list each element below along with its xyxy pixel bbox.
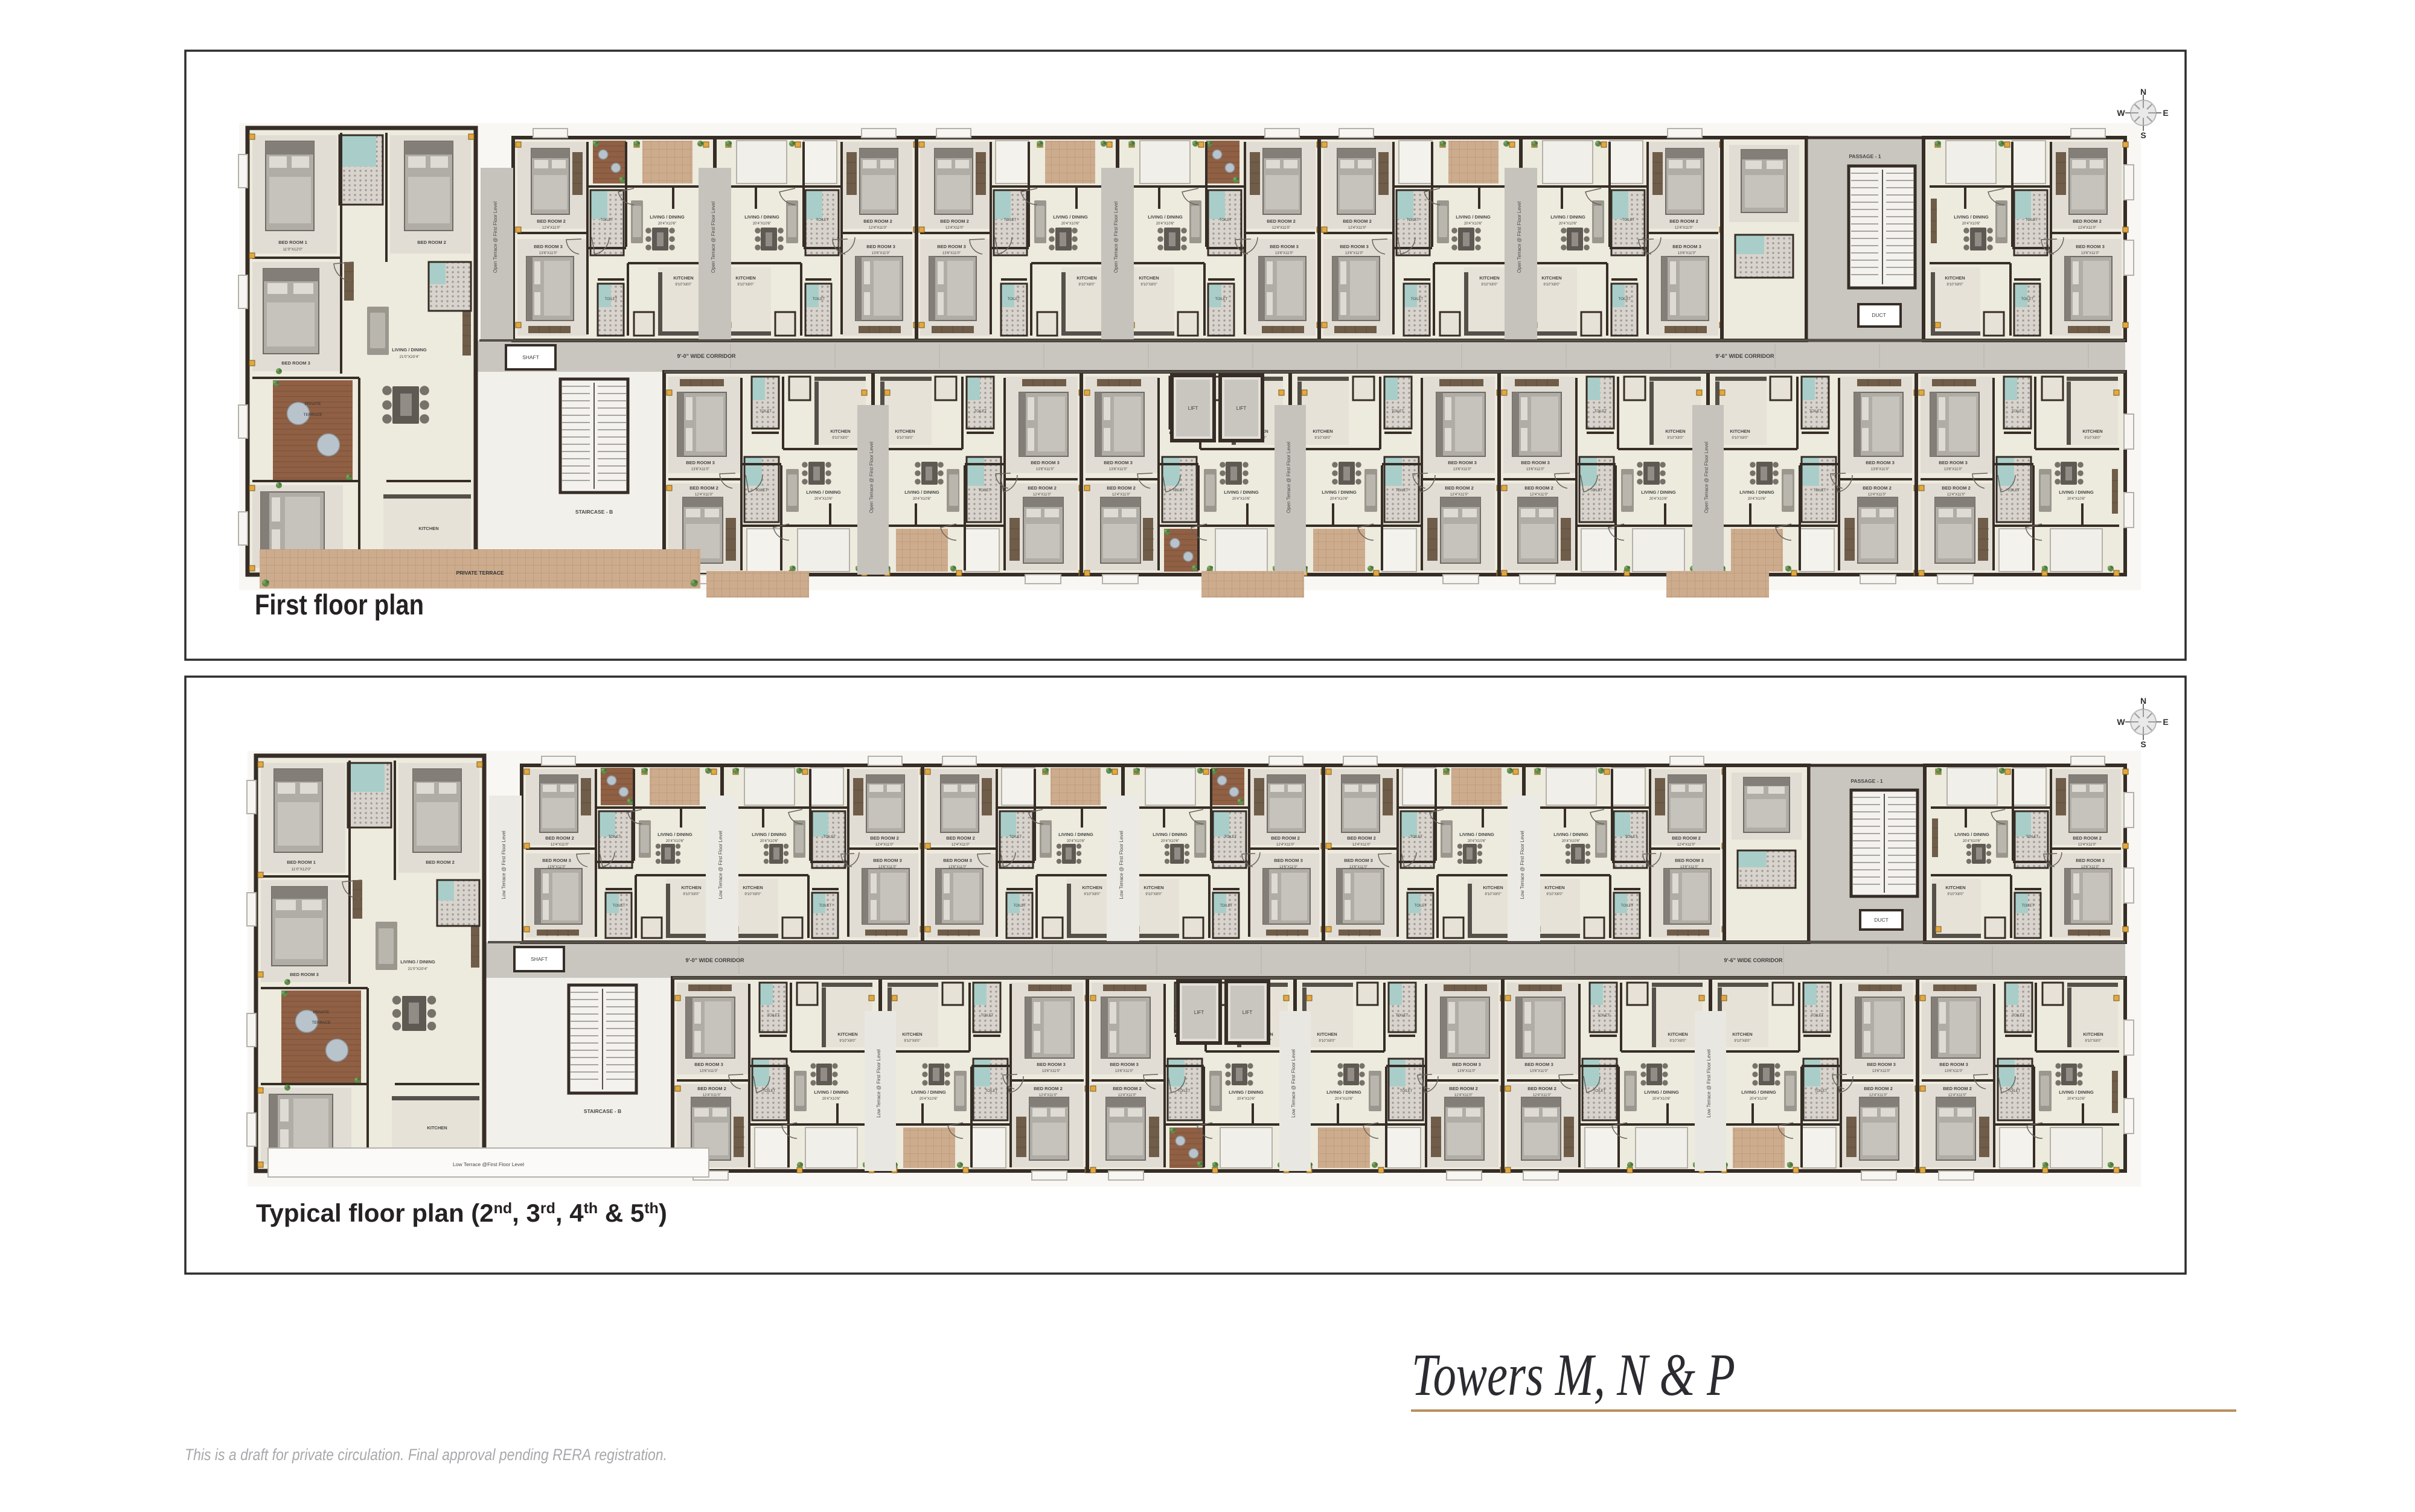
svg-text:20'4"X10'6": 20'4"X10'6" (814, 497, 833, 501)
svg-text:BED ROOM 2: BED ROOM 2 (417, 240, 446, 245)
svg-text:20'4"X10'6": 20'4"X10'6" (1468, 840, 1486, 843)
svg-text:BED ROOM 2: BED ROOM 2 (1672, 835, 1701, 841)
svg-text:12'4"X11'0": 12'4"X11'0" (1868, 493, 1886, 497)
svg-text:13'6"X11'0": 13'6"X11'0" (1944, 468, 1962, 471)
svg-text:13'6"X11'0": 13'6"X11'0" (691, 468, 709, 471)
svg-text:LIVING / DINING: LIVING / DINING (2059, 1089, 2094, 1095)
svg-text:BED ROOM 3: BED ROOM 3 (943, 858, 972, 863)
svg-text:11'0"X12'0": 11'0"X12'0" (283, 247, 303, 252)
svg-text:13'6"X11'0": 13'6"X11'0" (1680, 866, 1698, 869)
svg-text:Low Terrace @First Floor Level: Low Terrace @First Floor Level (453, 1161, 524, 1167)
svg-text:13'6"X11'0": 13'6"X11'0" (878, 866, 897, 869)
svg-text:KITCHEN: KITCHEN (1541, 275, 1561, 281)
svg-text:BED ROOM 2: BED ROOM 2 (940, 219, 969, 224)
svg-text:9'10"X8'0": 9'10"X8'0" (1314, 436, 1331, 440)
svg-text:13'6"X11'0": 13'6"X11'0" (539, 252, 557, 255)
svg-text:20'4"X10'6": 20'4"X10'6" (822, 1097, 841, 1101)
svg-text:13'6"X11'0": 13'6"X11'0" (1526, 468, 1544, 471)
svg-text:TOILET: TOILET (755, 489, 768, 493)
svg-text:BED ROOM 2: BED ROOM 2 (545, 835, 574, 841)
svg-text:LIVING / DINING: LIVING / DINING (1550, 214, 1585, 220)
svg-text:20'4"X10'6": 20'4"X10'6" (1748, 497, 1767, 501)
svg-text:TOILET: TOILET (2021, 298, 2034, 301)
svg-text:LIVING / DINING: LIVING / DINING (1644, 1089, 1679, 1095)
svg-text:12'4"X11'0": 12'4"X11'0" (1947, 493, 1965, 497)
svg-text:TOILET: TOILET (1392, 410, 1404, 413)
svg-text:TOILET: TOILET (1178, 1089, 1191, 1093)
svg-text:TOILET: TOILET (2012, 410, 2024, 413)
svg-text:TOILET: TOILET (1595, 410, 1607, 413)
svg-text:BED ROOM 3: BED ROOM 3 (1104, 460, 1133, 465)
svg-text:LIVING / DINING: LIVING / DINING (657, 832, 693, 837)
svg-text:12'4"X11'0": 12'4"X11'0" (542, 226, 560, 230)
svg-text:TOILET: TOILET (1625, 835, 1638, 839)
svg-text:21'0"X20'4": 21'0"X20'4" (399, 355, 420, 359)
svg-text:20'4"X10'6": 20'4"X10'6" (1237, 1097, 1256, 1101)
svg-text:BED ROOM 3: BED ROOM 3 (2076, 858, 2105, 863)
svg-text:LIFT: LIFT (1243, 1010, 1253, 1015)
svg-text:BED ROOM 1: BED ROOM 1 (278, 240, 307, 245)
svg-text:TOILET: TOILET (813, 298, 825, 301)
svg-text:KITCHEN: KITCHEN (681, 885, 701, 890)
svg-text:BED ROOM 3: BED ROOM 3 (290, 972, 319, 977)
svg-text:9'10"X8'0": 9'10"X8'0" (1078, 283, 1095, 287)
svg-text:TOILET: TOILET (1009, 835, 1022, 839)
svg-text:12'4"X11'0": 12'4"X11'0" (1454, 1094, 1473, 1097)
svg-text:20'4"X10'6": 20'4"X10'6" (666, 840, 685, 843)
svg-text:TERRACE: TERRACE (312, 1021, 331, 1025)
svg-text:KITCHEN: KITCHEN (2083, 1032, 2103, 1037)
svg-text:KITCHEN: KITCHEN (830, 429, 850, 434)
svg-text:13'6"X11'0": 13'6"X11'0" (1036, 468, 1054, 471)
svg-text:STAIRCASE - B: STAIRCASE - B (584, 1108, 621, 1114)
svg-text:9'10"X8'0": 9'10"X8'0" (683, 893, 699, 896)
svg-text:TOILET: TOILET (1411, 298, 1424, 301)
svg-text:20'4"X10'6": 20'4"X10'6" (1061, 222, 1080, 226)
svg-text:KITCHEN: KITCHEN (2082, 429, 2102, 434)
svg-text:9'10"X8'0": 9'10"X8'0" (1946, 283, 1963, 287)
svg-text:LIVING / DINING: LIVING / DINING (1153, 832, 1188, 837)
svg-text:KITCHEN: KITCHEN (1313, 429, 1332, 434)
svg-text:Low Terrace @ First Floor Leve: Low Terrace @ First Floor Level (501, 831, 507, 899)
svg-text:20'4"X10'6": 20'4"X10'6" (1963, 840, 1982, 843)
svg-text:9'-6" WIDE CORRIDOR: 9'-6" WIDE CORRIDOR (1724, 957, 1783, 963)
svg-text:KITCHEN: KITCHEN (1945, 885, 1965, 890)
svg-text:LIVING / DINING: LIVING / DINING (1739, 490, 1774, 495)
svg-text:9'10"X8'0": 9'10"X8'0" (897, 436, 913, 440)
svg-text:13'6"X11'0": 13'6"X11'0" (1279, 866, 1297, 869)
svg-text:BED ROOM 3: BED ROOM 3 (1866, 460, 1895, 465)
svg-text:LIFT: LIFT (1194, 1010, 1204, 1015)
svg-text:KITCHEN: KITCHEN (743, 885, 763, 890)
svg-text:13'6"X11'0": 13'6"X11'0" (1872, 1070, 1890, 1073)
svg-text:KITCHEN: KITCHEN (1479, 275, 1499, 281)
svg-text:Open Terrace @ First Floor Lev: Open Terrace @ First Floor Level (1286, 442, 1291, 513)
svg-text:20'4"X10'6": 20'4"X10'6" (658, 222, 677, 226)
svg-text:KITCHEN: KITCHEN (1730, 429, 1750, 434)
svg-text:E: E (2163, 717, 2168, 727)
svg-text:TOILET: TOILET (1410, 835, 1423, 839)
svg-text:13'6"X11'0": 13'6"X11'0" (1530, 1070, 1548, 1073)
svg-text:BED ROOM 3: BED ROOM 3 (1270, 244, 1299, 249)
svg-text:12'4"X11'0": 12'4"X11'0" (952, 843, 970, 847)
svg-text:LIVING / DINING: LIVING / DINING (911, 1089, 946, 1095)
svg-text:20'4"X10'6": 20'4"X10'6" (1559, 222, 1578, 226)
svg-text:9'10"X8'0": 9'10"X8'0" (1546, 893, 1563, 896)
svg-text:BED ROOM 2: BED ROOM 2 (863, 219, 892, 224)
svg-text:20'4"X10'6": 20'4"X10'6" (1464, 222, 1483, 226)
svg-text:12'4"X11'0": 12'4"X11'0" (2078, 843, 2096, 847)
svg-text:BED ROOM 3: BED ROOM 3 (1344, 858, 1373, 863)
svg-text:BED ROOM 2: BED ROOM 2 (1343, 219, 1372, 224)
svg-text:BED ROOM 2: BED ROOM 2 (1267, 219, 1296, 224)
svg-text:KITCHEN: KITCHEN (1139, 275, 1159, 281)
svg-text:LIVING / DINING: LIVING / DINING (752, 832, 787, 837)
svg-text:20'4"X10'6": 20'4"X10'6" (2067, 1097, 2086, 1101)
svg-text:TOILET: TOILET (1809, 410, 1822, 413)
svg-text:12'4"X11'0": 12'4"X11'0" (1450, 493, 1468, 497)
svg-text:BED ROOM 3: BED ROOM 3 (686, 460, 715, 465)
svg-text:TOILET: TOILET (1593, 1089, 1606, 1093)
svg-text:DUCT: DUCT (1872, 312, 1886, 318)
svg-text:9'10"X8'0": 9'10"X8'0" (1319, 1039, 1335, 1043)
svg-text:Towers M, N & P: Towers M, N & P (1412, 1341, 1735, 1408)
svg-text:13'6"X11'0": 13'6"X11'0" (548, 866, 566, 869)
svg-text:TOILET: TOILET (609, 835, 621, 839)
svg-text:9'10"X8'0": 9'10"X8'0" (1485, 893, 1501, 896)
svg-text:9'10"X8'0": 9'10"X8'0" (1543, 283, 1559, 287)
svg-text:20'4"X10'6": 20'4"X10'6" (1330, 497, 1349, 501)
svg-text:13'6"X11'0": 13'6"X11'0" (2081, 866, 2099, 869)
svg-text:12'4"X11'0": 12'4"X11'0" (695, 493, 713, 497)
svg-text:BED ROOM 2: BED ROOM 2 (697, 1086, 726, 1091)
svg-text:9'10"X8'0": 9'10"X8'0" (832, 436, 848, 440)
svg-text:13'6"X11'0": 13'6"X11'0" (1678, 252, 1696, 255)
svg-text:LIVING / DINING: LIVING / DINING (1459, 832, 1494, 837)
svg-text:BED ROOM 3: BED ROOM 3 (542, 858, 571, 863)
svg-text:21'0"X20'4": 21'0"X20'4" (408, 967, 428, 971)
svg-text:13'6"X11'0": 13'6"X11'0" (1453, 468, 1471, 471)
svg-text:BED ROOM 2: BED ROOM 2 (1942, 485, 1971, 491)
svg-text:LIVING / DINING: LIVING / DINING (1326, 1089, 1361, 1095)
svg-text:TOILET: TOILET (1619, 298, 1631, 301)
svg-text:KITCHEN: KITCHEN (1082, 885, 1102, 890)
svg-text:BED ROOM 2: BED ROOM 2 (1669, 219, 1698, 224)
svg-text:TOILET: TOILET (760, 410, 772, 413)
svg-text:BED ROOM 3: BED ROOM 3 (1340, 244, 1369, 249)
svg-text:BED ROOM 3: BED ROOM 3 (873, 858, 902, 863)
svg-text:9'10"X8'0": 9'10"X8'0" (1732, 436, 1748, 440)
svg-text:BED ROOM 3: BED ROOM 3 (1867, 1062, 1896, 1067)
svg-text:BED ROOM 1: BED ROOM 1 (287, 860, 316, 865)
svg-text:BED ROOM 3: BED ROOM 3 (1274, 858, 1303, 863)
svg-text:SHAFT: SHAFT (531, 956, 548, 962)
svg-text:PRIVATE: PRIVATE (313, 1010, 330, 1015)
svg-text:13'6"X11'0": 13'6"X11'0" (1349, 866, 1367, 869)
svg-text:LIVING / DINING: LIVING / DINING (1058, 832, 1093, 837)
svg-text:TOILET: TOILET (1590, 489, 1603, 493)
svg-text:Open Terrace @ First Floor Lev: Open Terrace @ First Floor Level (493, 202, 498, 273)
svg-text:9'10"X8'0": 9'10"X8'0" (1734, 1039, 1750, 1043)
svg-text:20'4"X10'6": 20'4"X10'6" (1161, 840, 1180, 843)
svg-text:TOILET: TOILET (2012, 1014, 2025, 1018)
svg-text:12'4"X11'0": 12'4"X11'0" (1348, 226, 1366, 230)
svg-text:TOILET: TOILET (767, 1014, 780, 1018)
svg-text:TOILET: TOILET (981, 1014, 994, 1018)
svg-text:BED ROOM 2: BED ROOM 2 (1107, 485, 1136, 491)
svg-text:BED ROOM 2: BED ROOM 2 (870, 835, 899, 841)
svg-text:BED ROOM 2: BED ROOM 2 (1445, 485, 1474, 491)
svg-text:20'4"X10'6": 20'4"X10'6" (920, 1097, 938, 1101)
svg-text:TOILET: TOILET (2022, 904, 2035, 908)
svg-text:9'10"X8'0": 9'10"X8'0" (1140, 283, 1157, 287)
svg-text:First floor plan: First floor plan (255, 589, 424, 620)
svg-text:20'4"X10'6": 20'4"X10'6" (1649, 497, 1668, 501)
svg-text:20'4"X10'6": 20'4"X10'6" (1652, 1097, 1671, 1101)
svg-text:BED ROOM 3: BED ROOM 3 (1672, 244, 1701, 249)
svg-text:20'4"X10'6": 20'4"X10'6" (913, 497, 932, 501)
svg-text:TOILET: TOILET (1014, 904, 1026, 908)
svg-text:20'4"X10'6": 20'4"X10'6" (1562, 840, 1581, 843)
svg-text:KITCHEN: KITCHEN (902, 1032, 922, 1037)
svg-text:9'10"X8'0": 9'10"X8'0" (839, 1039, 856, 1043)
svg-text:12'4"X11'0": 12'4"X11'0" (1869, 1094, 1887, 1097)
svg-text:9'10"X8'0": 9'10"X8'0" (1481, 283, 1497, 287)
svg-text:13'6"X11'0": 13'6"X11'0" (1275, 252, 1293, 255)
svg-text:LIVING / DINING: LIVING / DINING (1224, 490, 1259, 495)
svg-text:20'4"X10'6": 20'4"X10'6" (1232, 497, 1251, 501)
svg-text:TOILET: TOILET (1220, 219, 1232, 222)
svg-text:KITCHEN: KITCHEN (895, 429, 915, 434)
svg-text:12'4"X11'0": 12'4"X11'0" (1276, 843, 1294, 847)
svg-text:13'6"X11'0": 13'6"X11'0" (1871, 468, 1889, 471)
svg-text:KITCHEN: KITCHEN (1665, 429, 1685, 434)
svg-text:9'10"X8'0": 9'10"X8'0" (1947, 893, 1963, 896)
svg-text:KITCHEN: KITCHEN (1668, 1032, 1687, 1037)
svg-text:20'4"X10'6": 20'4"X10'6" (753, 222, 772, 226)
svg-text:TOILET: TOILET (1400, 1089, 1413, 1093)
svg-text:BED ROOM 3: BED ROOM 3 (1939, 1062, 1968, 1067)
svg-text:20'4"X10'6": 20'4"X10'6" (1962, 222, 1981, 226)
svg-text:S: S (2140, 739, 2146, 749)
svg-text:13'6"X11'0": 13'6"X11'0" (942, 252, 961, 255)
svg-text:13'6"X11'0": 13'6"X11'0" (872, 252, 890, 255)
svg-text:BED ROOM 2: BED ROOM 2 (1271, 835, 1300, 841)
svg-text:BED ROOM 2: BED ROOM 2 (537, 219, 566, 224)
svg-text:TOILET: TOILET (1215, 298, 1228, 301)
svg-text:BED ROOM 2: BED ROOM 2 (1527, 1086, 1556, 1091)
svg-text:LIVING / DINING: LIVING / DINING (1641, 490, 1676, 495)
svg-text:12'4"X11'0": 12'4"X11'0" (1352, 843, 1371, 847)
svg-text:KITCHEN: KITCHEN (1544, 885, 1564, 890)
svg-text:12'4"X11'0": 12'4"X11'0" (1677, 843, 1695, 847)
svg-text:Open Terrace @ First Floor Lev: Open Terrace @ First Floor Level (1113, 202, 1119, 273)
svg-text:N: N (2140, 696, 2146, 706)
svg-text:9'10"X8'0": 9'10"X8'0" (737, 283, 753, 287)
svg-text:BED ROOM 2: BED ROOM 2 (1113, 1086, 1142, 1091)
svg-text:KITCHEN: KITCHEN (837, 1032, 857, 1037)
svg-text:LIVING / DINING: LIVING / DINING (1553, 832, 1588, 837)
svg-text:13'6"X11'0": 13'6"X11'0" (1345, 252, 1363, 255)
svg-text:KITCHEN: KITCHEN (1144, 885, 1163, 890)
svg-text:STAIRCASE - B: STAIRCASE - B (575, 509, 613, 515)
svg-text:N: N (2140, 87, 2146, 97)
svg-text:BED ROOM 2: BED ROOM 2 (1028, 485, 1057, 491)
svg-text:TOILET: TOILET (1598, 1014, 1610, 1018)
svg-text:PRIVATE: PRIVATE (305, 402, 322, 406)
svg-text:12'4"X11'0": 12'4"X11'0" (551, 843, 569, 847)
svg-text:BED ROOM 3: BED ROOM 3 (281, 360, 310, 366)
svg-text:20'4"X10'6": 20'4"X10'6" (1067, 840, 1086, 843)
svg-text:BED ROOM 2: BED ROOM 2 (1864, 1086, 1893, 1091)
svg-text:TOILET: TOILET (2026, 219, 2038, 222)
svg-text:TOILET: TOILET (2007, 489, 2020, 493)
svg-text:20'4"X10'6": 20'4"X10'6" (760, 840, 779, 843)
svg-text:12'4"X11'0": 12'4"X11'0" (1533, 1094, 1551, 1097)
svg-text:TOILET: TOILET (2026, 835, 2039, 839)
svg-text:LIVING / DINING: LIVING / DINING (1148, 214, 1183, 220)
svg-text:TOILET: TOILET (2008, 1089, 2021, 1093)
svg-text:BED ROOM 3: BED ROOM 3 (1524, 1062, 1553, 1067)
svg-text:BED ROOM 3: BED ROOM 3 (866, 244, 895, 249)
svg-text:TOILET: TOILET (1008, 298, 1020, 301)
svg-text:LIVING / DINING: LIVING / DINING (1229, 1089, 1264, 1095)
svg-text:9'10"X8'0": 9'10"X8'0" (1084, 893, 1100, 896)
svg-text:BED ROOM 2: BED ROOM 2 (689, 485, 718, 491)
svg-text:TOILET: TOILET (1172, 489, 1185, 493)
svg-text:12'4"X11'0": 12'4"X11'0" (1112, 493, 1130, 497)
svg-text:LIVING / DINING: LIVING / DINING (1954, 214, 1989, 220)
svg-text:BED ROOM 3: BED ROOM 3 (1452, 1062, 1481, 1067)
svg-text:PASSAGE - 1: PASSAGE - 1 (1850, 778, 1882, 784)
svg-text:9'10"X8'0": 9'10"X8'0" (1145, 893, 1162, 896)
svg-text:TOILET: TOILET (1622, 219, 1635, 222)
svg-text:TERRACE: TERRACE (303, 413, 322, 417)
svg-text:BED ROOM 3: BED ROOM 3 (937, 244, 966, 249)
svg-text:TOILET: TOILET (1396, 489, 1409, 493)
svg-text:20'4"X10'6": 20'4"X10'6" (1156, 222, 1175, 226)
svg-text:TOILET: TOILET (1220, 904, 1233, 908)
svg-text:LIVING / DINING: LIVING / DINING (400, 959, 435, 965)
svg-text:BED ROOM 2: BED ROOM 2 (1034, 1086, 1063, 1091)
svg-text:Low Terrace @ First Floor Leve: Low Terrace @ First Floor Level (1520, 831, 1525, 899)
svg-text:KITCHEN: KITCHEN (1317, 1032, 1337, 1037)
svg-text:20'4"X10'6": 20'4"X10'6" (2067, 497, 2086, 501)
svg-text:TOILET: TOILET (1224, 835, 1237, 839)
svg-text:9'10"X8'0": 9'10"X8'0" (1669, 1039, 1686, 1043)
svg-text:LIVING / DINING: LIVING / DINING (2059, 490, 2094, 495)
svg-text:W: W (2117, 108, 2125, 118)
svg-text:Open Terrace @ First Floor Lev: Open Terrace @ First Floor Level (1517, 202, 1522, 273)
svg-text:BED ROOM 3: BED ROOM 3 (1037, 1062, 1066, 1067)
svg-text:TOILET: TOILET (819, 904, 832, 908)
svg-text:BED ROOM 3: BED ROOM 3 (1448, 460, 1477, 465)
svg-text:LIFT: LIFT (1188, 406, 1198, 411)
svg-text:W: W (2117, 717, 2125, 727)
svg-text:Low Terrace @ First Floor Leve: Low Terrace @ First Floor Level (1291, 1049, 1296, 1118)
svg-text:20'4"X10'6": 20'4"X10'6" (1750, 1097, 1768, 1101)
svg-text:20'4"X10'6": 20'4"X10'6" (1335, 1097, 1354, 1101)
svg-text:BED ROOM 2: BED ROOM 2 (1449, 1086, 1478, 1091)
svg-text:TOILET: TOILET (979, 489, 991, 493)
svg-text:12'4"X11'0": 12'4"X11'0" (1272, 226, 1290, 230)
svg-text:S: S (2140, 130, 2146, 140)
svg-text:11'0"X12'0": 11'0"X12'0" (292, 867, 312, 872)
svg-text:Open Terrace @ First Floor Lev: Open Terrace @ First Floor Level (1704, 442, 1709, 513)
svg-text:LIFT: LIFT (1236, 406, 1247, 411)
svg-text:PRIVATE TERRACE: PRIVATE TERRACE (456, 570, 504, 576)
svg-text:13'6"X11'0": 13'6"X11'0" (948, 866, 967, 869)
svg-text:BED ROOM 2: BED ROOM 2 (1524, 485, 1553, 491)
svg-text:13'6"X11'0": 13'6"X11'0" (1945, 1070, 1963, 1073)
svg-text:12'4"X11'0": 12'4"X11'0" (875, 843, 894, 847)
svg-text:13'6"X11'0": 13'6"X11'0" (2081, 252, 2099, 255)
svg-text:BED ROOM 3: BED ROOM 3 (1031, 460, 1060, 465)
svg-text:LIVING / DINING: LIVING / DINING (392, 347, 427, 352)
svg-text:LIVING / DINING: LIVING / DINING (650, 214, 685, 220)
svg-text:Low Terrace @ First Floor Leve: Low Terrace @ First Floor Level (1706, 1049, 1712, 1118)
svg-text:12'4"X11'0": 12'4"X11'0" (703, 1094, 721, 1097)
svg-text:TOILET: TOILET (1415, 904, 1427, 908)
svg-text:LIVING / DINING: LIVING / DINING (1456, 214, 1491, 220)
svg-text:9'10"X8'0": 9'10"X8'0" (1667, 436, 1683, 440)
svg-text:BED ROOM 2: BED ROOM 2 (1943, 1086, 1972, 1091)
svg-text:LIVING / DINING: LIVING / DINING (1322, 490, 1357, 495)
svg-text:BED ROOM 2: BED ROOM 2 (2073, 219, 2102, 224)
svg-text:TOILET: TOILET (763, 1089, 776, 1093)
svg-text:TOILET: TOILET (816, 219, 829, 222)
svg-text:BED ROOM 2: BED ROOM 2 (426, 860, 455, 865)
svg-text:TOILET: TOILET (1396, 1014, 1409, 1018)
svg-text:9'-0" WIDE CORRIDOR: 9'-0" WIDE CORRIDOR (677, 353, 736, 359)
svg-text:TOILET: TOILET (1811, 1014, 1824, 1018)
svg-text:KITCHEN: KITCHEN (1945, 275, 1965, 281)
svg-text:Open Terrace @ First Floor Lev: Open Terrace @ First Floor Level (869, 442, 874, 513)
svg-text:BED ROOM 3: BED ROOM 3 (2076, 244, 2105, 249)
svg-text:12'4"X11'0": 12'4"X11'0" (1948, 1094, 1966, 1097)
svg-text:BED ROOM 3: BED ROOM 3 (694, 1062, 723, 1067)
svg-text:12'4"X11'0": 12'4"X11'0" (945, 226, 964, 230)
svg-text:TOILET: TOILET (1407, 219, 1419, 222)
svg-text:9'10"X8'0": 9'10"X8'0" (675, 283, 691, 287)
svg-text:13'6"X11'0": 13'6"X11'0" (1115, 1070, 1133, 1073)
svg-text:TOILET: TOILET (1004, 219, 1017, 222)
svg-text:KITCHEN: KITCHEN (418, 526, 438, 531)
svg-text:Low Terrace @ First Floor Leve: Low Terrace @ First Floor Level (718, 831, 723, 899)
svg-text:DUCT: DUCT (1874, 917, 1889, 923)
svg-text:9'10"X8'0": 9'10"X8'0" (2085, 1039, 2101, 1043)
svg-text:13'6"X11'0": 13'6"X11'0" (1109, 468, 1127, 471)
svg-text:12'4"X11'0": 12'4"X11'0" (1033, 493, 1051, 497)
svg-text:LIVING / DINING: LIVING / DINING (1954, 832, 1989, 837)
svg-text:TOILET: TOILET (974, 410, 987, 413)
svg-text:KITCHEN: KITCHEN (1483, 885, 1503, 890)
svg-text:Open Terrace @ First Floor Lev: Open Terrace @ First Floor Level (711, 202, 716, 273)
svg-text:E: E (2163, 108, 2168, 118)
svg-text:LIVING / DINING: LIVING / DINING (1053, 214, 1088, 220)
svg-text:BED ROOM 2: BED ROOM 2 (1347, 835, 1376, 841)
svg-text:KITCHEN: KITCHEN (427, 1125, 447, 1131)
svg-text:KITCHEN: KITCHEN (735, 275, 755, 281)
svg-text:Typical floor plan (2nd, 3rd,: Typical floor plan (2nd, 3rd, 4th & 5th) (256, 1199, 667, 1227)
svg-text:LIVING / DINING: LIVING / DINING (904, 490, 939, 495)
svg-text:KITCHEN: KITCHEN (1732, 1032, 1752, 1037)
svg-text:TOILET: TOILET (1621, 904, 1634, 908)
svg-text:BED ROOM 3: BED ROOM 3 (1939, 460, 1968, 465)
svg-text:9'-0" WIDE CORRIDOR: 9'-0" WIDE CORRIDOR (686, 957, 744, 963)
svg-text:SHAFT: SHAFT (522, 354, 539, 360)
svg-text:Low Terrace @ First Floor Leve: Low Terrace @ First Floor Level (1119, 831, 1124, 899)
